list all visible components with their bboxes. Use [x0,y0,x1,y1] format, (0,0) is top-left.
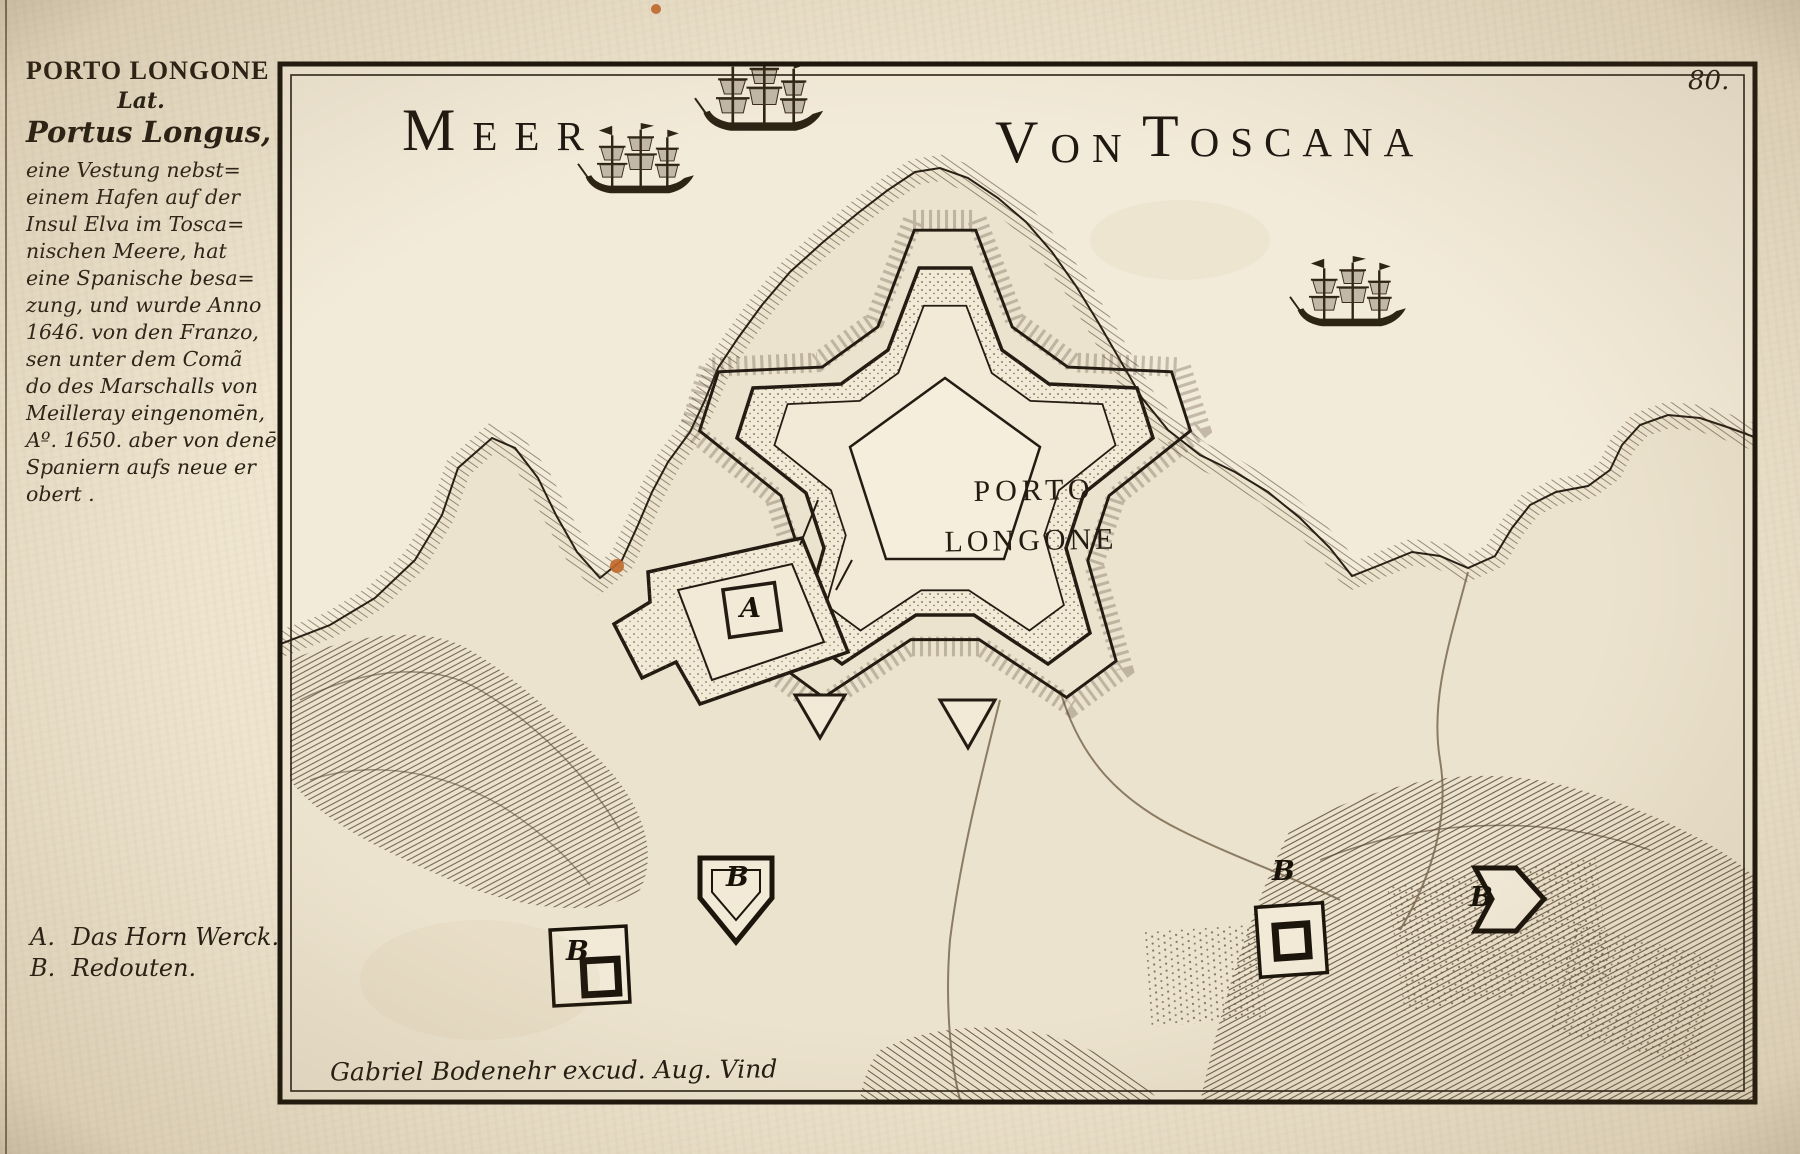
latin-name: Portus Longus, [26,115,278,149]
description-line: nischen Meere, hat [26,238,278,265]
sea-title-meer: Meer [402,96,601,165]
description-line: obert . [26,481,278,508]
description-line: Meilleray eingenomēn, [26,400,278,427]
map-legend: A. Das Horn Werck. B. Redouten. [30,922,279,984]
description-line: eine Vestung nebst= [26,157,278,184]
legend-item-redoubts: B. Redouten. [30,953,279,984]
legend-key: B. [30,953,64,984]
marker-letter-hornwork: A [740,593,761,624]
map-title: PORTO LONGONE [26,56,278,86]
description-line: Insul Elva im Tosca= [26,211,278,238]
marker-letter-redoubt-east: B [1272,856,1295,887]
marker-letter-redoubt-southwest: B [566,936,589,967]
sea-title-von: von [995,108,1134,177]
map-subtitle: Lat. [26,88,256,114]
legend-label: Das Horn Werck. [72,923,279,951]
description-line: Aº. 1650. aber von denē [26,427,278,454]
description-line: do des Marschalls von [26,373,278,400]
legend-key: A. [30,922,64,953]
legend-label: Redouten. [72,954,196,982]
marker-letter-redoubt-far-east: B [1470,882,1493,913]
engraved-map-page: PORTO LONGONE Lat. Portus Longus, eine V… [0,0,1800,1154]
foxing-stain [651,4,661,14]
description-line: sen unter dem Comã [26,346,278,373]
description-line: 1646. von den Franzo, [26,319,278,346]
sea-title-toscana: Toscana [1142,102,1424,171]
description-line: zung, und wurde Anno [26,292,278,319]
description-line: einem Hafen auf der [26,184,278,211]
fort-label-line2: LONGONE [890,522,1173,561]
foxing-stain [610,559,624,573]
description-line: Spaniern aufs neue er [26,454,278,481]
page-number: 80. [1688,66,1729,96]
fort-label-line1: PORTO [902,472,1167,511]
legend-item-hornwork: A. Das Horn Werck. [30,922,279,953]
description-block: eine Vestung nebst= einem Hafen auf der … [26,157,278,508]
description-line: eine Spanische besa= [26,265,278,292]
marker-letter-redoubt-west: B [726,862,749,893]
redoubt-east [1256,903,1328,978]
engraver-attribution: Gabriel Bodenehr excud. Aug. Vind [330,1054,778,1086]
sidebar-description: PORTO LONGONE Lat. Portus Longus, eine V… [26,56,278,508]
